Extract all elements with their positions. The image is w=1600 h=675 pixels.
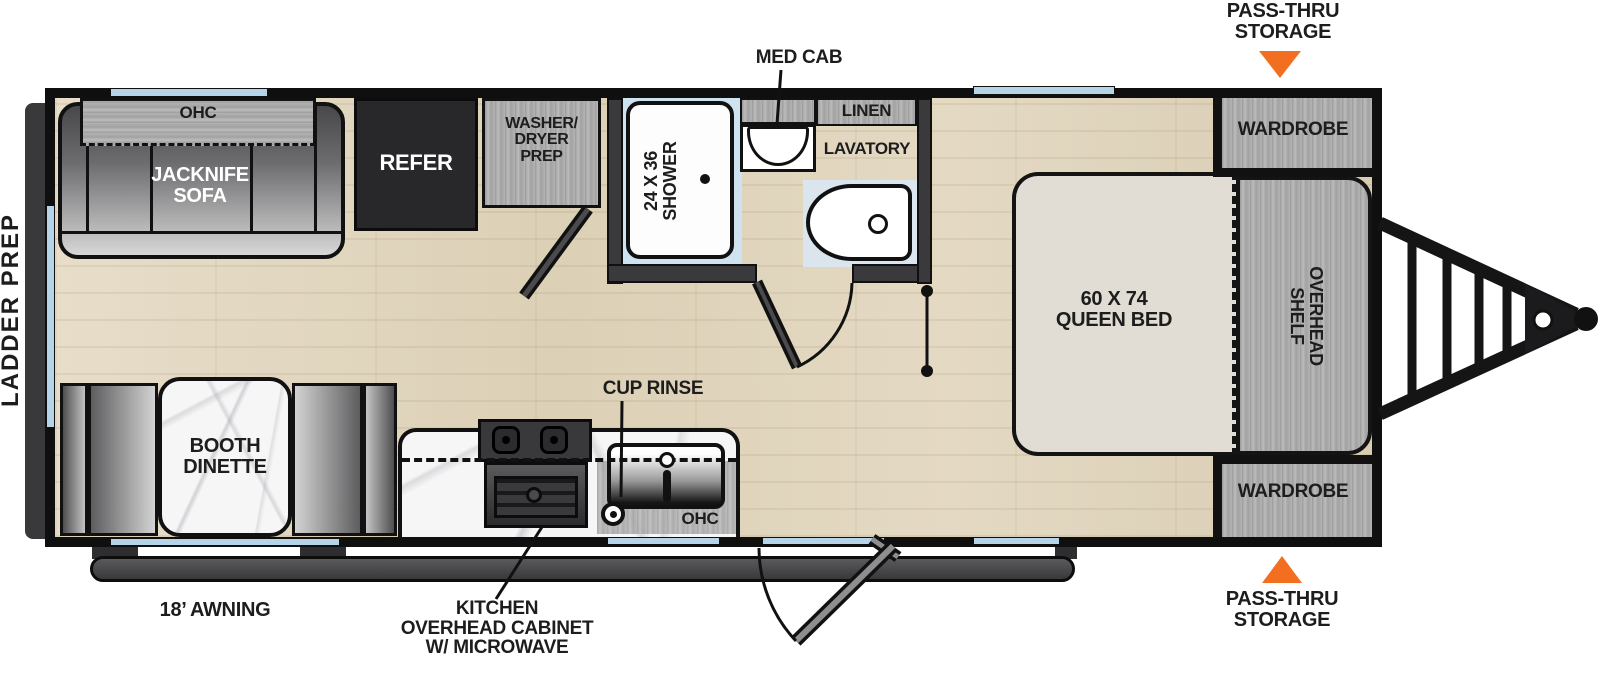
washer-dryer-label: WASHER/ DRYER PREP bbox=[482, 116, 601, 165]
overhead-shelf-label: OVERHEAD SHELF bbox=[1283, 226, 1325, 406]
sofa-ohc-label: OHC bbox=[82, 104, 314, 122]
dinette-bench-strip-right bbox=[363, 383, 397, 536]
faucet-base bbox=[659, 452, 675, 468]
linen-label: LINEN bbox=[816, 102, 917, 120]
pass-thru-storage-label-bottom: PASS-THRU STORAGE bbox=[1202, 589, 1362, 630]
refer-label: REFER bbox=[354, 152, 478, 175]
wardrobe-top-label: WARDROBE bbox=[1218, 120, 1368, 140]
ladder-prep-label: LADDER PREP bbox=[0, 178, 25, 442]
sofa-seat-edge bbox=[62, 231, 341, 234]
wardrobe-bottom-label: WARDROBE bbox=[1218, 482, 1368, 502]
lavatory-label: LAVATORY bbox=[812, 140, 922, 158]
window-bottom-kitchen bbox=[607, 537, 720, 545]
faucet-stem bbox=[663, 470, 671, 502]
jacknife-sofa-label: JACKNIFE SOFA bbox=[100, 165, 300, 206]
window-bottom-entry bbox=[762, 537, 885, 545]
kitchen-ohc-label: OHC bbox=[662, 510, 738, 528]
kitchen-ohc-callout-label: KITCHEN OVERHEAD CABINET W/ MICROWAVE bbox=[377, 599, 617, 658]
awning-bar bbox=[90, 556, 1075, 582]
shower-left-wall bbox=[607, 98, 623, 284]
pass-thru-arrow-down-icon bbox=[1259, 51, 1301, 78]
shower-drain bbox=[700, 174, 710, 184]
wardrobe-bottom-wall bbox=[1213, 455, 1372, 464]
oven-handle-ring bbox=[526, 487, 542, 503]
window-top-sofa bbox=[110, 88, 268, 97]
med-cab bbox=[740, 98, 816, 124]
pass-thru-storage-label-top: PASS-THRU STORAGE bbox=[1203, 1, 1363, 42]
dinette-bench-left bbox=[88, 383, 158, 536]
awning-label: 18’ AWNING bbox=[130, 600, 300, 621]
entry-door bbox=[759, 539, 898, 641]
toilet-flush-button bbox=[868, 214, 888, 234]
queen-bed-label: 60 X 74 QUEEN BED bbox=[1022, 289, 1206, 330]
wardrobe-top-wall bbox=[1213, 168, 1372, 177]
med-cab-label: MED CAB bbox=[738, 48, 860, 68]
pass-thru-arrow-up-icon bbox=[1262, 556, 1302, 583]
cup-rinse-center bbox=[610, 511, 617, 518]
bath-bottom-wall-left bbox=[607, 264, 757, 283]
trailer-hitch-icon bbox=[1380, 223, 1598, 414]
window-top-bedroom bbox=[973, 86, 1115, 95]
kitchen-ohc-dashed-line bbox=[402, 458, 736, 462]
dinette-bench-right bbox=[292, 383, 363, 536]
window-rear-wall bbox=[46, 205, 55, 428]
toilet bbox=[806, 184, 912, 261]
stove-burner-cap bbox=[550, 436, 558, 444]
dinette-bench-strip-left bbox=[60, 383, 88, 536]
stove-burner-cap bbox=[502, 436, 510, 444]
floorplan-canvas: OHC JACKNIFE SOFA REFER WASHER/ DRYER PR… bbox=[0, 0, 1600, 675]
window-bottom-dinette bbox=[110, 538, 340, 546]
window-bottom-bedroom bbox=[973, 537, 1060, 545]
cup-rinse-label: CUP RINSE bbox=[593, 379, 713, 399]
booth-dinette-label: BOOTH DINETTE bbox=[160, 436, 290, 477]
bath-right-wall bbox=[917, 98, 932, 284]
shower-label: 24 X 36 SHOWER bbox=[642, 101, 686, 261]
